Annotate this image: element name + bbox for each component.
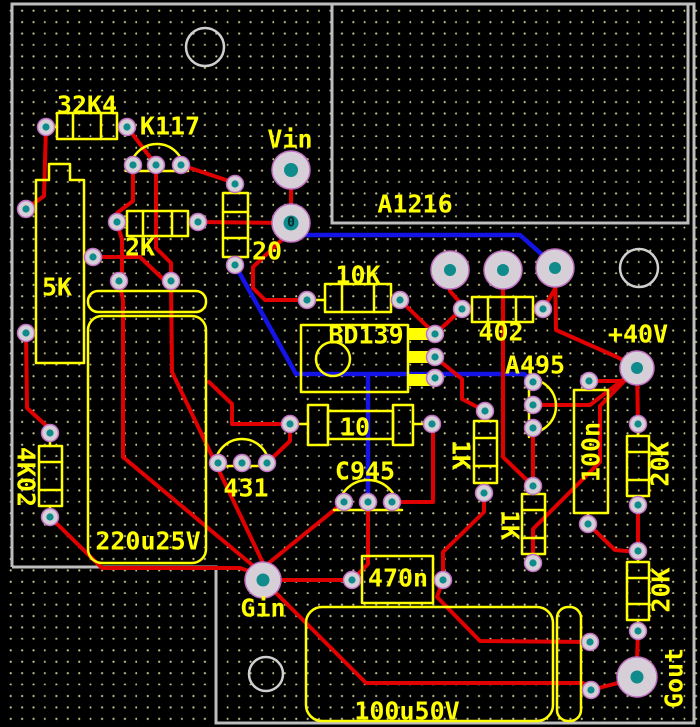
pad[interactable] bbox=[42, 425, 59, 442]
pcb-editor-canvas: 032K4K117VinA12162K205K10K402BD139+40VA4… bbox=[0, 0, 700, 727]
pad[interactable] bbox=[85, 249, 102, 266]
label-32k4[interactable]: 32K4 bbox=[57, 91, 117, 120]
pad[interactable] bbox=[18, 201, 35, 218]
pad[interactable] bbox=[435, 572, 452, 589]
pad[interactable] bbox=[580, 516, 597, 533]
top-copper-trace[interactable] bbox=[263, 580, 591, 690]
label-431[interactable]: 431 bbox=[223, 474, 268, 503]
pad[interactable] bbox=[392, 292, 409, 309]
component-4k02-silkscreen[interactable] bbox=[39, 433, 62, 517]
pad[interactable] bbox=[630, 543, 647, 560]
drill-hole bbox=[620, 249, 658, 287]
label-c945[interactable]: C945 bbox=[335, 457, 395, 486]
component-220u25v-silkscreen[interactable] bbox=[88, 291, 206, 563]
pad[interactable] bbox=[336, 494, 353, 511]
pad[interactable] bbox=[125, 157, 142, 174]
label-4k02[interactable]: 4K02 bbox=[12, 447, 41, 507]
label-402[interactable]: 402 bbox=[478, 318, 523, 347]
pad-a1216-1[interactable] bbox=[431, 251, 469, 289]
pad[interactable] bbox=[535, 301, 552, 318]
top-copper-trace[interactable] bbox=[156, 165, 171, 281]
pad[interactable] bbox=[476, 485, 493, 502]
pad[interactable] bbox=[227, 176, 244, 193]
drill-hole bbox=[249, 657, 283, 691]
pad[interactable] bbox=[360, 494, 377, 511]
pad[interactable] bbox=[18, 325, 35, 342]
top-copper-trace[interactable] bbox=[437, 580, 590, 642]
pad[interactable] bbox=[190, 214, 207, 231]
top-copper-trace[interactable] bbox=[209, 382, 290, 424]
pad-a1216-3[interactable] bbox=[536, 249, 574, 287]
drill-hole bbox=[186, 28, 224, 66]
pad[interactable] bbox=[454, 301, 471, 318]
pad[interactable] bbox=[42, 509, 59, 526]
pad-gout[interactable] bbox=[617, 657, 657, 697]
pad[interactable] bbox=[119, 119, 136, 136]
pad[interactable] bbox=[525, 478, 542, 495]
label-20[interactable]: 20 bbox=[252, 237, 282, 266]
label-vin[interactable]: Vin bbox=[267, 125, 312, 154]
pad[interactable] bbox=[630, 497, 647, 514]
label-20k-b[interactable]: 20K bbox=[647, 567, 676, 612]
label-5k[interactable]: 5K bbox=[42, 273, 72, 302]
pad[interactable] bbox=[582, 634, 599, 651]
label-220u25v[interactable]: 220u25V bbox=[95, 527, 200, 556]
pad[interactable] bbox=[525, 420, 542, 437]
pad[interactable] bbox=[259, 455, 276, 472]
pad[interactable] bbox=[427, 370, 444, 387]
pad[interactable] bbox=[282, 416, 299, 433]
top-copper-trace[interactable] bbox=[443, 493, 484, 580]
pad[interactable] bbox=[427, 326, 444, 343]
pad[interactable] bbox=[163, 273, 180, 290]
label-gout[interactable]: Gout bbox=[660, 648, 689, 708]
pad[interactable] bbox=[477, 403, 494, 420]
pad[interactable] bbox=[148, 157, 165, 174]
pad[interactable] bbox=[299, 292, 316, 309]
pad[interactable] bbox=[344, 572, 361, 589]
pad-a1216-2[interactable] bbox=[484, 251, 522, 289]
label-a495[interactable]: A495 bbox=[505, 351, 565, 380]
label-20k-a[interactable]: 20K bbox=[646, 441, 675, 486]
label-100n[interactable]: 100n bbox=[577, 422, 606, 482]
pad[interactable] bbox=[173, 157, 190, 174]
top-copper-trace[interactable] bbox=[435, 357, 485, 411]
label-10k[interactable]: 10K bbox=[335, 261, 380, 290]
label-p40v[interactable]: +40V bbox=[608, 320, 668, 349]
pad[interactable] bbox=[630, 623, 647, 640]
pad[interactable] bbox=[234, 455, 251, 472]
pad[interactable] bbox=[384, 494, 401, 511]
top-copper-trace[interactable] bbox=[263, 502, 344, 572]
label-1k-a[interactable]: 1K bbox=[447, 440, 476, 470]
pad[interactable] bbox=[427, 349, 444, 366]
pad-p40v[interactable] bbox=[620, 351, 654, 385]
top-copper-trace[interactable] bbox=[26, 333, 50, 429]
pad-number-label: 0 bbox=[287, 216, 295, 231]
label-1k-b[interactable]: 1K bbox=[496, 510, 525, 540]
pad[interactable] bbox=[630, 416, 647, 433]
label-a1216[interactable]: A1216 bbox=[377, 190, 452, 219]
label-100u50v[interactable]: 100u50V bbox=[354, 697, 459, 726]
label-k117[interactable]: K117 bbox=[140, 112, 200, 141]
label-470n[interactable]: 470n bbox=[368, 564, 428, 593]
pcb-layout-drawing: 032K4K117VinA12162K205K10K402BD139+40VA4… bbox=[0, 0, 700, 727]
pad[interactable] bbox=[109, 214, 126, 231]
label-2k[interactable]: 2K bbox=[125, 233, 155, 262]
label-gin[interactable]: Gin bbox=[240, 594, 285, 623]
pad[interactable] bbox=[525, 397, 542, 414]
pad[interactable] bbox=[38, 119, 55, 136]
pad-vin[interactable] bbox=[272, 151, 310, 189]
pad[interactable] bbox=[525, 555, 542, 572]
label-bd139[interactable]: BD139 bbox=[328, 321, 403, 350]
pad[interactable] bbox=[581, 373, 598, 390]
pad[interactable] bbox=[424, 416, 441, 433]
component-1k-a-silkscreen[interactable] bbox=[474, 411, 497, 493]
label-10[interactable]: 10 bbox=[340, 413, 370, 442]
pad[interactable] bbox=[210, 455, 227, 472]
pad[interactable] bbox=[111, 273, 128, 290]
pad[interactable] bbox=[227, 257, 244, 274]
component-20-silkscreen[interactable] bbox=[223, 184, 248, 265]
pad[interactable] bbox=[583, 682, 600, 699]
